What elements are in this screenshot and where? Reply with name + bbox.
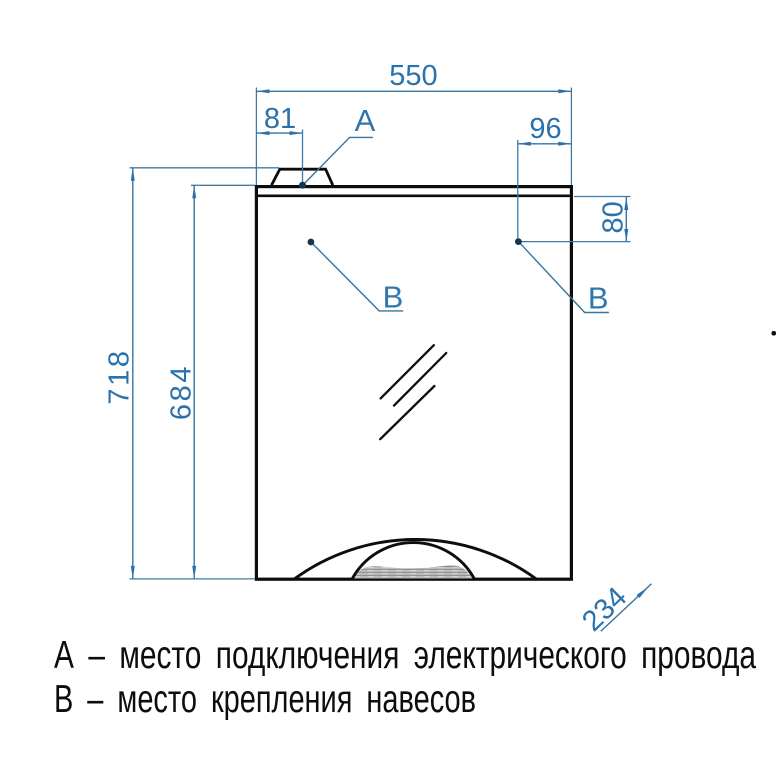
- svg-text:A: A: [355, 103, 376, 138]
- svg-text:В – место крепления навесов: В – место крепления навесов: [54, 678, 476, 721]
- svg-text:718: 718: [104, 348, 136, 404]
- svg-text:81: 81: [264, 103, 296, 135]
- svg-text:B: B: [383, 280, 404, 315]
- svg-text:96: 96: [529, 113, 561, 145]
- svg-text:80: 80: [598, 201, 630, 233]
- svg-text:684: 684: [166, 364, 198, 420]
- svg-text:А – место подключения электрич: А – место подключения электрического про…: [54, 634, 756, 677]
- svg-text:B: B: [588, 281, 609, 316]
- svg-text:550: 550: [389, 60, 437, 92]
